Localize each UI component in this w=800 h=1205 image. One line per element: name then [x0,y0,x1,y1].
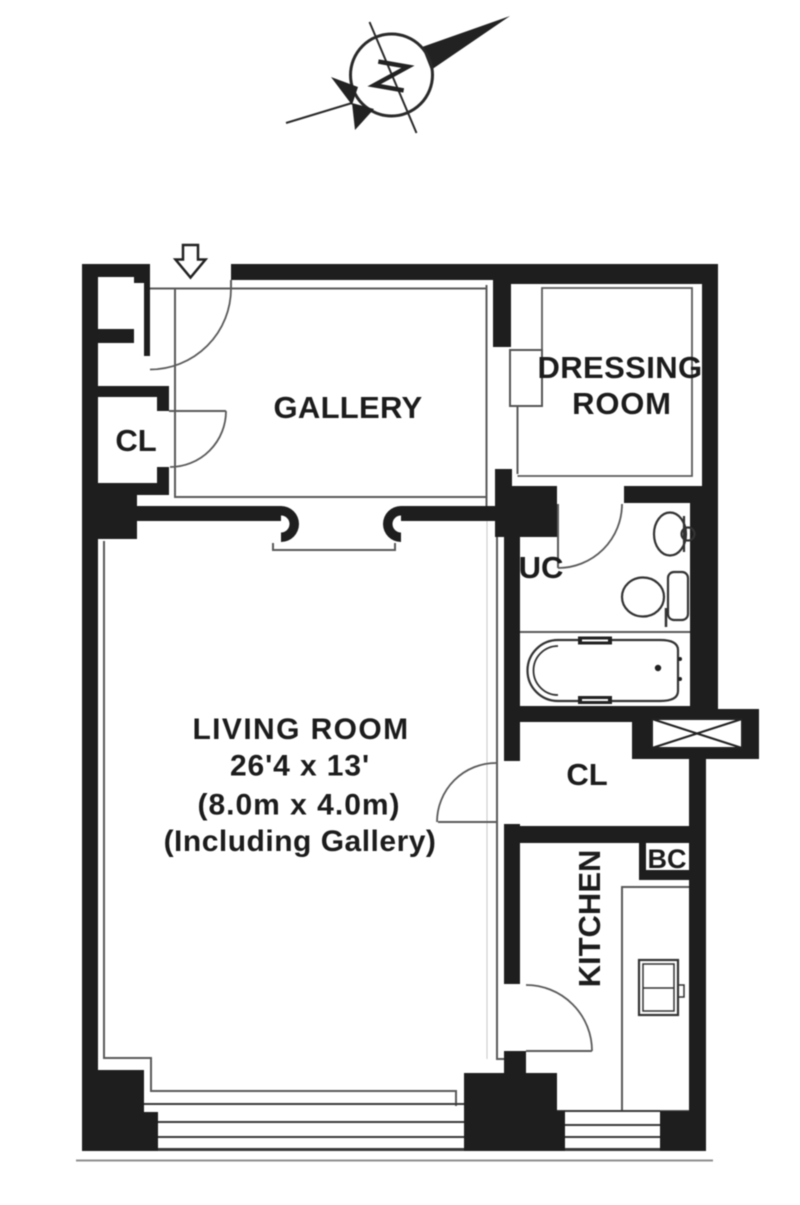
svg-text:CL: CL [566,757,607,792]
svg-text:(8.0m x 4.0m): (8.0m x 4.0m) [197,789,400,822]
svg-text:LIVING ROOM: LIVING ROOM [192,713,409,746]
svg-text:KITCHEN: KITCHEN [572,850,607,988]
svg-text:BC: BC [648,844,687,874]
svg-text:UC: UC [519,550,564,585]
svg-text:GALLERY: GALLERY [273,390,422,425]
svg-text:ROOM: ROOM [572,386,672,421]
svg-text:26'4 x 13': 26'4 x 13' [230,750,370,783]
svg-text:CL: CL [115,423,156,458]
svg-text:(Including Gallery): (Including Gallery) [164,825,437,858]
svg-text:DRESSING: DRESSING [537,350,702,385]
